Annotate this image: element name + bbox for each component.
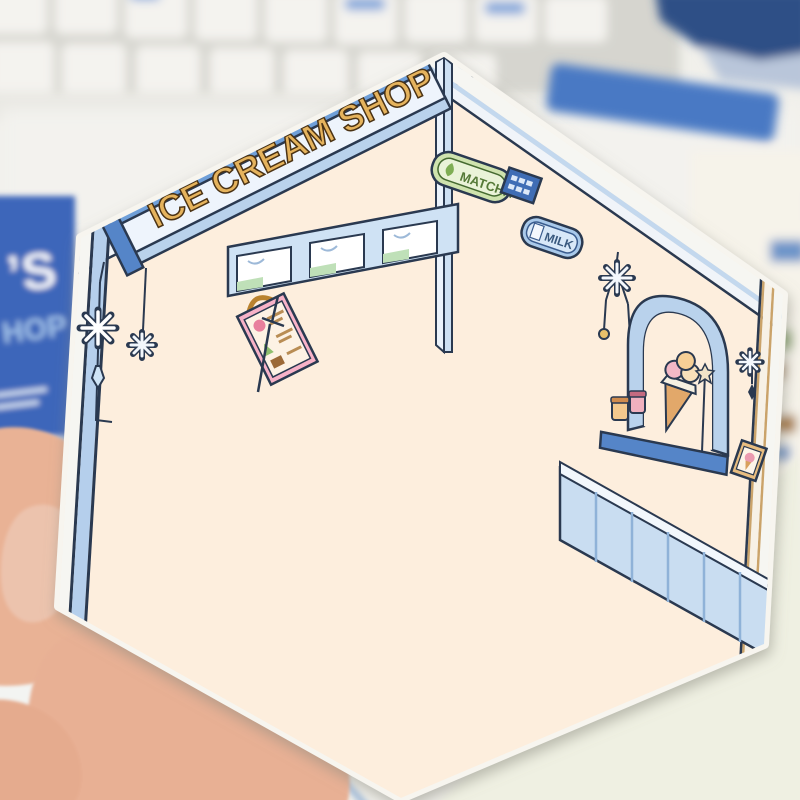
svg-text:’S: ’S xyxy=(4,241,60,305)
